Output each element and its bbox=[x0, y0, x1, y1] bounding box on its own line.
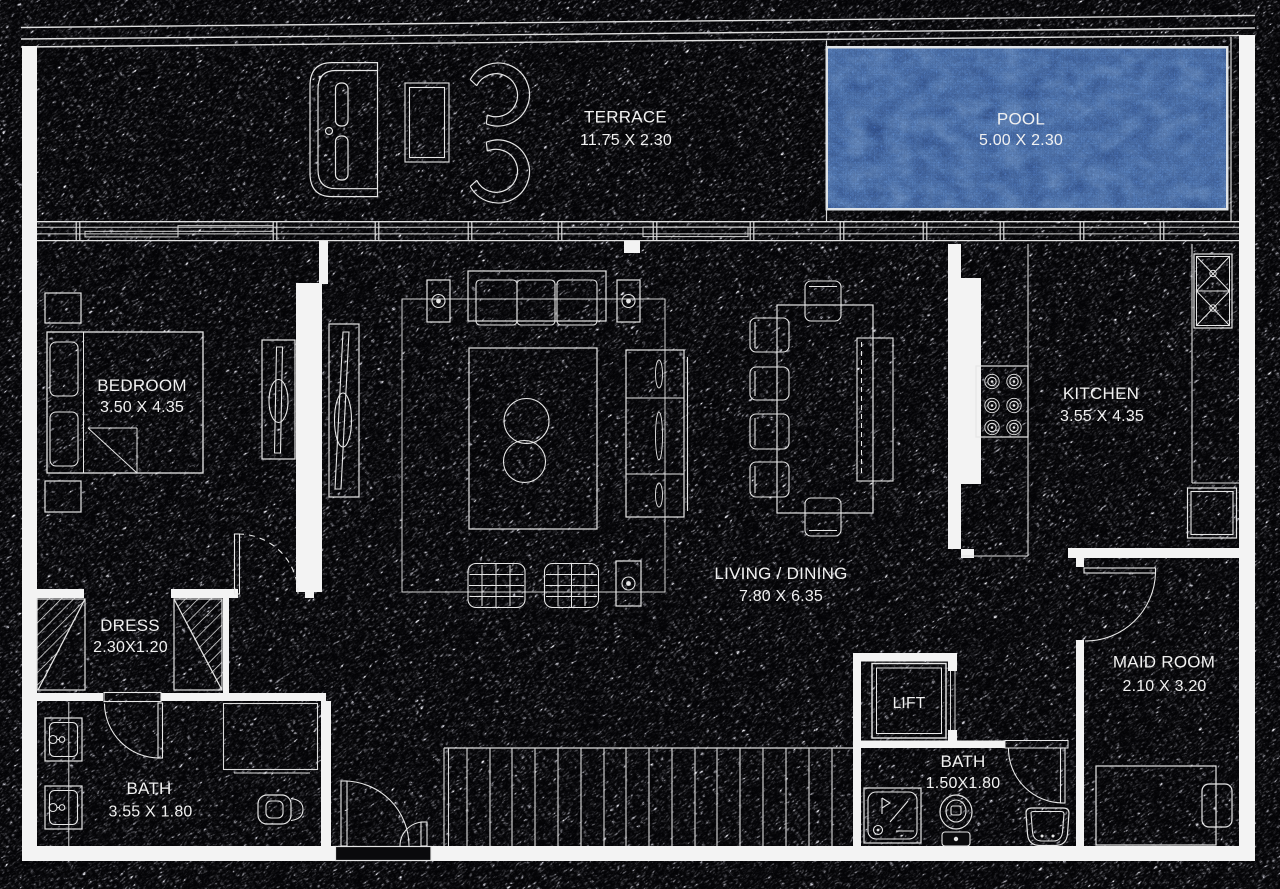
svg-text:2.10 X 3.20: 2.10 X 3.20 bbox=[1122, 678, 1206, 695]
svg-text:LIFT: LIFT bbox=[893, 695, 926, 712]
svg-text:7.80 X 6.35: 7.80 X 6.35 bbox=[739, 588, 823, 605]
svg-text:DRESS: DRESS bbox=[100, 616, 160, 635]
svg-text:BATH: BATH bbox=[940, 752, 985, 771]
svg-text:LIVING / DINING: LIVING / DINING bbox=[714, 564, 847, 583]
svg-text:2.30X1.20: 2.30X1.20 bbox=[93, 639, 168, 656]
svg-text:KITCHEN: KITCHEN bbox=[1063, 384, 1139, 403]
svg-text:3.55 X 4.35: 3.55 X 4.35 bbox=[1060, 408, 1144, 425]
svg-text:3.55 X 1.80: 3.55 X 1.80 bbox=[108, 804, 192, 821]
svg-text:11.75 X 2.30: 11.75 X 2.30 bbox=[580, 132, 672, 149]
svg-text:MAID ROOM: MAID ROOM bbox=[1113, 653, 1215, 672]
svg-text:5.00 X 2.30: 5.00 X 2.30 bbox=[979, 132, 1063, 149]
svg-text:TERRACE: TERRACE bbox=[584, 108, 667, 127]
svg-text:BATH: BATH bbox=[126, 779, 171, 798]
svg-text:1.50X1.80: 1.50X1.80 bbox=[926, 775, 1001, 792]
svg-text:POOL: POOL bbox=[997, 110, 1045, 129]
svg-text:BEDROOM: BEDROOM bbox=[97, 376, 187, 395]
svg-text:3.50 X 4.35: 3.50 X 4.35 bbox=[100, 399, 184, 416]
